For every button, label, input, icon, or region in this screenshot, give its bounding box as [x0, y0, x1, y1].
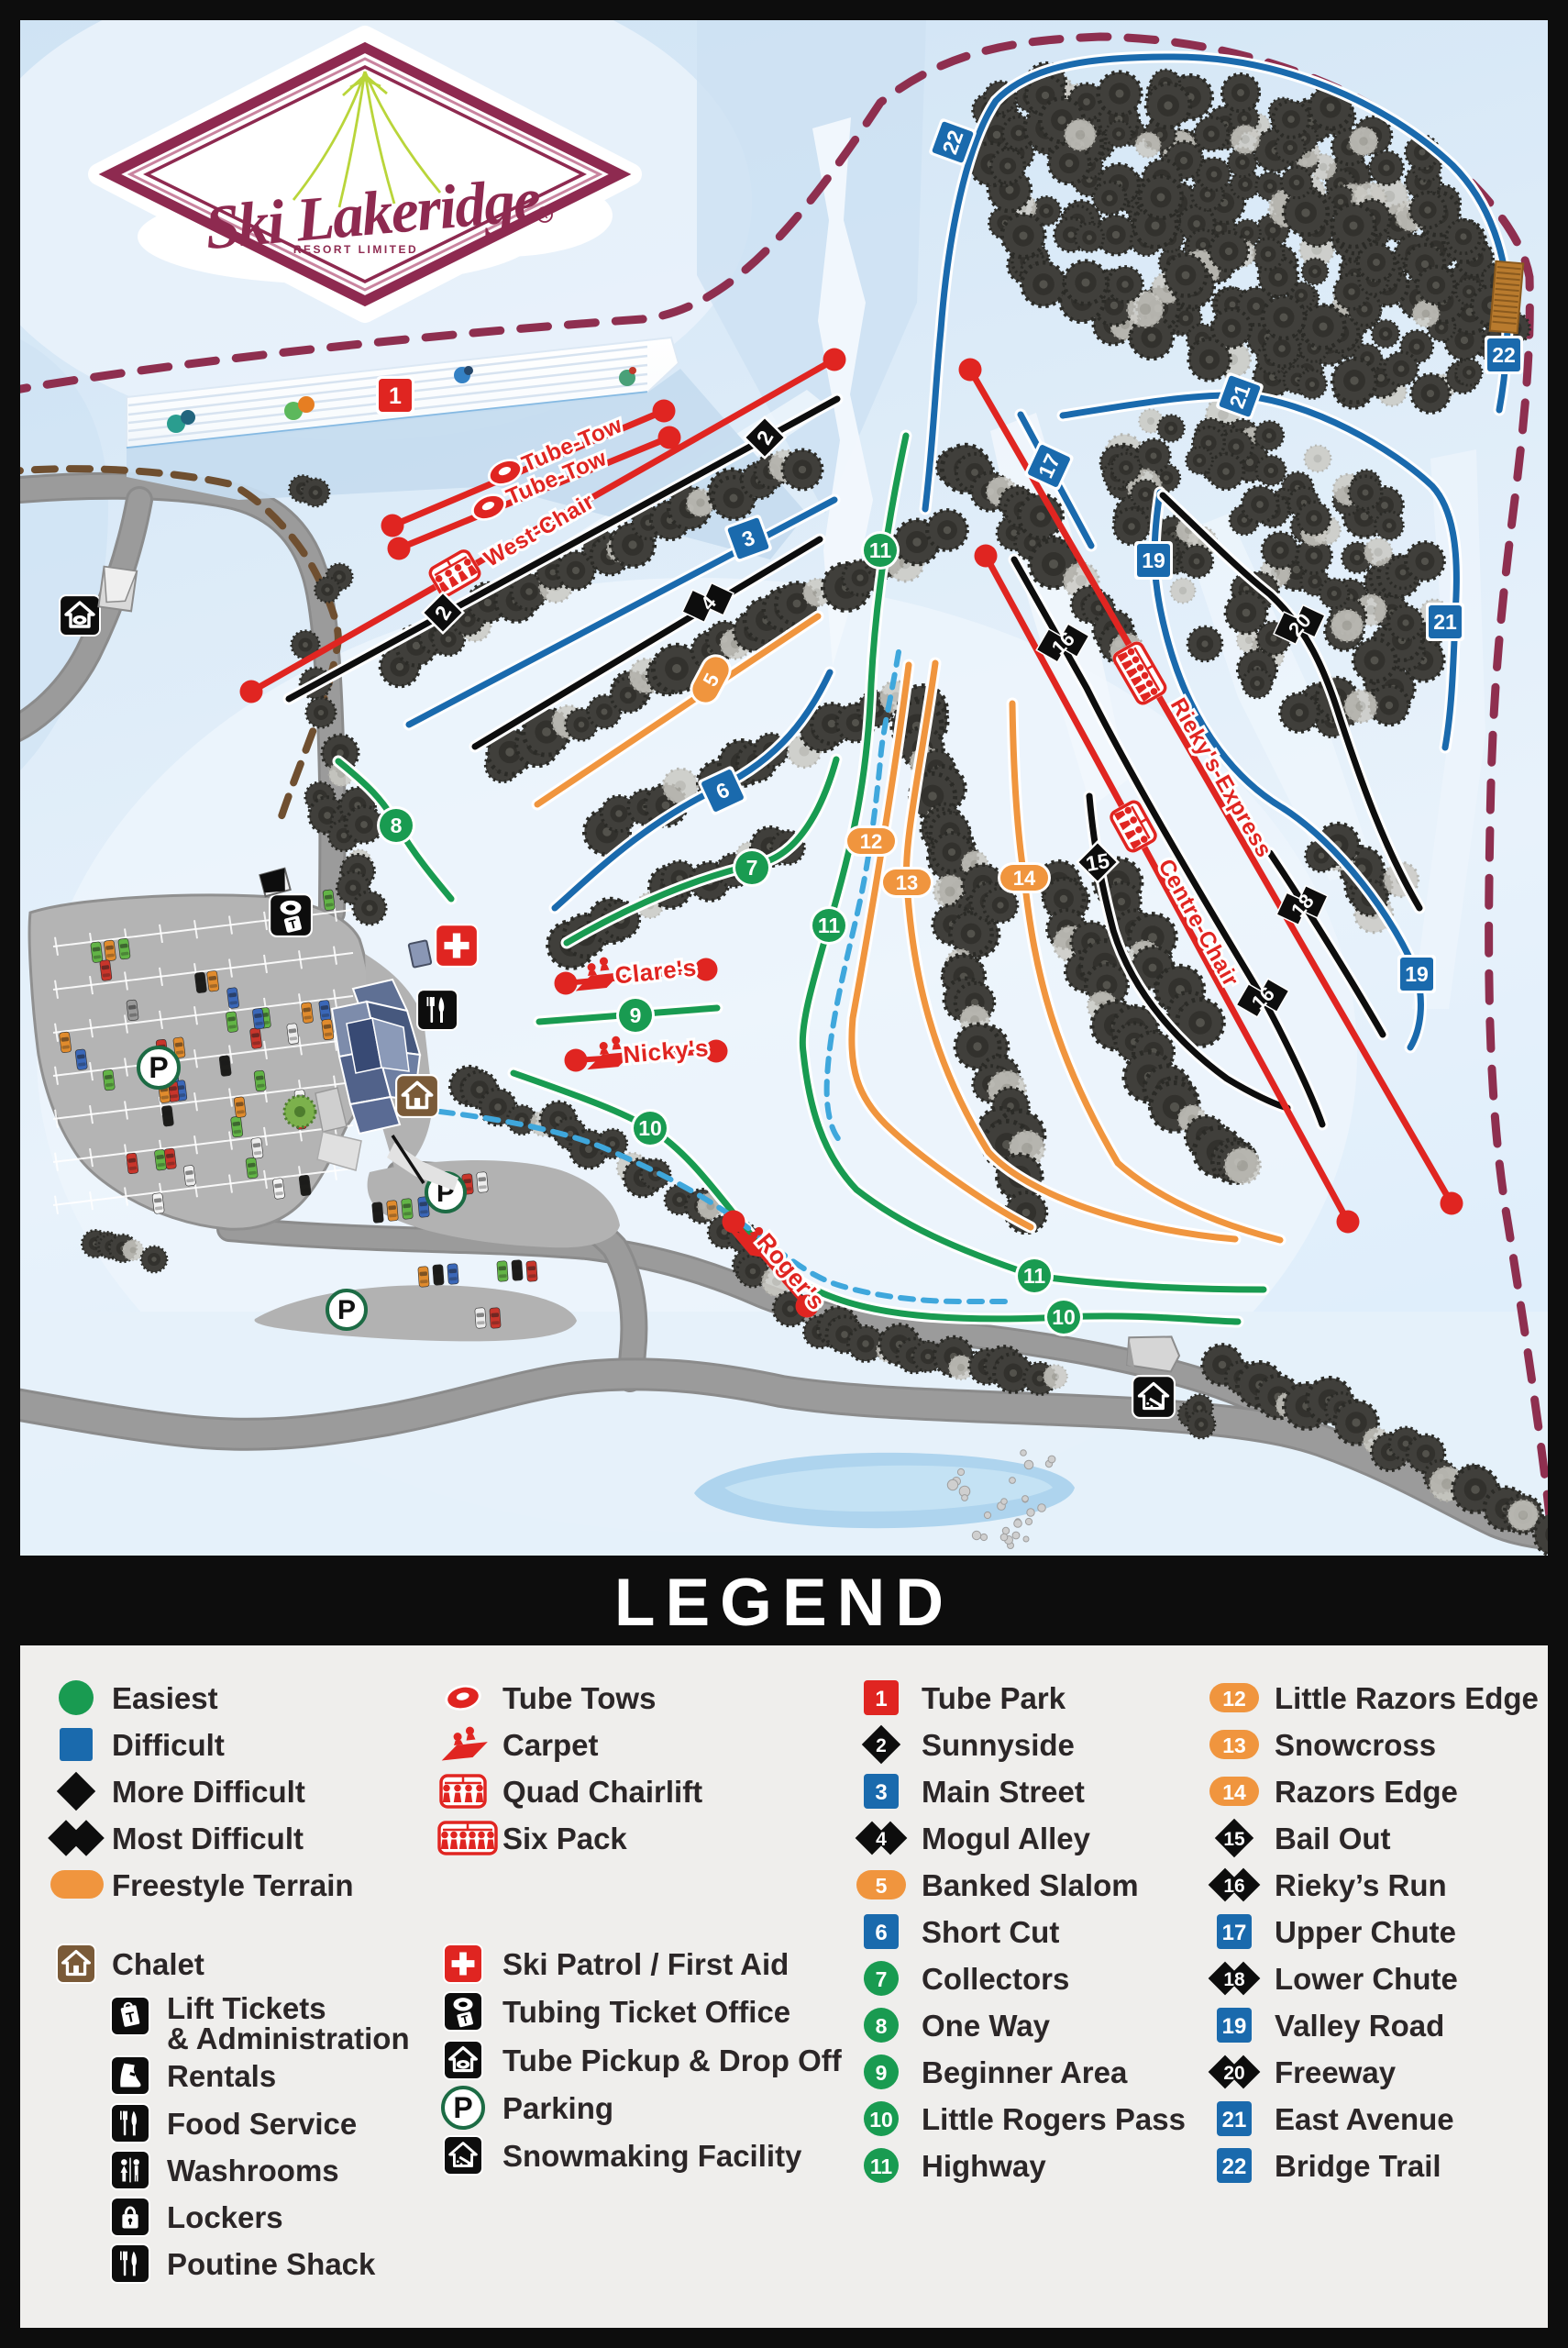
svg-text:22: 22: [1222, 2154, 1247, 2179]
svg-text:13: 13: [896, 871, 918, 894]
svg-text:15: 15: [1084, 848, 1111, 876]
svg-text:Little Razors Edge: Little Razors Edge: [1275, 1681, 1539, 1715]
svg-text:P: P: [453, 2091, 472, 2124]
svg-text:Tube Park: Tube Park: [922, 1681, 1066, 1715]
svg-text:Little Rogers Pass: Little Rogers Pass: [922, 2102, 1186, 2136]
svg-text:Washrooms: Washrooms: [167, 2154, 339, 2187]
svg-text:Freestyle Terrain: Freestyle Terrain: [112, 1868, 354, 1902]
svg-text:16: 16: [1223, 1876, 1244, 1897]
svg-text:3: 3: [875, 1780, 887, 1805]
svg-text:RESORT LIMITED: RESORT LIMITED: [293, 243, 418, 256]
svg-text:LEGEND: LEGEND: [614, 1566, 954, 1640]
svg-text:Tube Pickup & Drop Off: Tube Pickup & Drop Off: [502, 2043, 843, 2077]
svg-text:11: 11: [869, 538, 892, 562]
svg-text:7: 7: [876, 1967, 888, 1991]
svg-text:17: 17: [1222, 1921, 1247, 1945]
svg-text:Difficult: Difficult: [112, 1728, 225, 1762]
svg-text:21: 21: [1222, 2108, 1247, 2132]
svg-text:Main Street: Main Street: [922, 1775, 1085, 1809]
svg-text:Snowmaking Facility: Snowmaking Facility: [502, 2139, 802, 2173]
svg-text:14: 14: [1013, 867, 1036, 890]
svg-text:P: P: [149, 1051, 168, 1084]
svg-text:Mogul Alley: Mogul Alley: [922, 1822, 1091, 1855]
svg-text:Parking: Parking: [502, 2091, 613, 2125]
svg-text:7: 7: [746, 856, 758, 880]
svg-text:Poutine Shack: Poutine Shack: [167, 2247, 376, 2281]
svg-text:9: 9: [876, 2061, 888, 2085]
svg-text:Sunnyside: Sunnyside: [922, 1728, 1075, 1762]
svg-text:Rieky’s Run: Rieky’s Run: [1275, 1868, 1447, 1902]
svg-text:Valley Road: Valley Road: [1275, 2009, 1444, 2043]
svg-text:Chalet: Chalet: [112, 1947, 204, 1981]
svg-text:11: 11: [1023, 1264, 1046, 1288]
svg-text:15: 15: [1223, 1829, 1245, 1850]
svg-text:Bail Out: Bail Out: [1275, 1822, 1391, 1855]
svg-text:8: 8: [391, 814, 403, 837]
svg-text:11: 11: [870, 2154, 893, 2178]
svg-text:Collectors: Collectors: [922, 1962, 1069, 1996]
svg-text:22: 22: [1492, 343, 1516, 367]
svg-text:Rentals: Rentals: [167, 2059, 276, 2093]
svg-text:Lift Tickets: Lift Tickets: [167, 1991, 326, 2025]
svg-text:1: 1: [875, 1687, 887, 1711]
svg-text:5: 5: [876, 1874, 888, 1898]
svg-text:21: 21: [1433, 610, 1457, 634]
svg-text:19: 19: [1405, 962, 1429, 986]
svg-text:Bridge Trail: Bridge Trail: [1275, 2149, 1441, 2183]
svg-text:Upper Chute: Upper Chute: [1275, 1915, 1456, 1949]
svg-text:Freeway: Freeway: [1275, 2055, 1397, 2089]
svg-text:20: 20: [1223, 2063, 1244, 2084]
svg-text:19: 19: [1142, 548, 1165, 572]
svg-text:Razors Edge: Razors Edge: [1275, 1775, 1458, 1809]
svg-text:12: 12: [1222, 1687, 1246, 1711]
svg-text:10: 10: [869, 2108, 893, 2132]
svg-text:Easiest: Easiest: [112, 1681, 218, 1715]
svg-text:Short Cut: Short Cut: [922, 1915, 1059, 1949]
svg-text:19: 19: [1222, 2014, 1247, 2039]
svg-text:4: 4: [876, 1829, 887, 1850]
svg-text:Carpet: Carpet: [502, 1728, 599, 1762]
svg-text:1: 1: [389, 383, 402, 409]
svg-text:Lower Chute: Lower Chute: [1275, 1962, 1458, 1996]
svg-text:Tube Tows: Tube Tows: [502, 1681, 656, 1715]
svg-text:Snowcross: Snowcross: [1275, 1728, 1436, 1762]
svg-text:Banked Slalom: Banked Slalom: [922, 1868, 1139, 1902]
svg-text:One Way: One Way: [922, 2009, 1051, 2043]
svg-text:2: 2: [876, 1735, 887, 1756]
svg-text:R: R: [541, 211, 548, 221]
svg-text:18: 18: [1223, 1969, 1245, 1990]
svg-text:9: 9: [630, 1003, 642, 1027]
svg-text:Ski Patrol / First Aid: Ski Patrol / First Aid: [502, 1947, 789, 1981]
svg-text:& Administration: & Administration: [167, 2021, 410, 2055]
svg-text:Tubing Ticket Office: Tubing Ticket Office: [502, 1995, 790, 2029]
svg-text:Six Pack: Six Pack: [502, 1822, 627, 1855]
svg-text:8: 8: [876, 2014, 888, 2038]
svg-text:12: 12: [860, 830, 882, 853]
svg-text:11: 11: [818, 914, 841, 937]
svg-text:East Avenue: East Avenue: [1275, 2102, 1454, 2136]
svg-text:10: 10: [638, 1116, 662, 1140]
svg-text:14: 14: [1222, 1780, 1246, 1804]
svg-text:6: 6: [875, 1921, 887, 1945]
svg-text:Beginner Area: Beginner Area: [922, 2055, 1128, 2089]
svg-text:13: 13: [1222, 1733, 1246, 1757]
svg-text:Lockers: Lockers: [167, 2200, 283, 2234]
svg-text:10: 10: [1052, 1305, 1076, 1329]
svg-text:Most Difficult: Most Difficult: [112, 1822, 304, 1855]
svg-text:Quad Chairlift: Quad Chairlift: [502, 1775, 702, 1809]
svg-text:More Difficult: More Difficult: [112, 1775, 305, 1809]
svg-text:Highway: Highway: [922, 2149, 1046, 2183]
svg-text:P: P: [337, 1295, 356, 1325]
svg-text:Food Service: Food Service: [167, 2107, 357, 2141]
